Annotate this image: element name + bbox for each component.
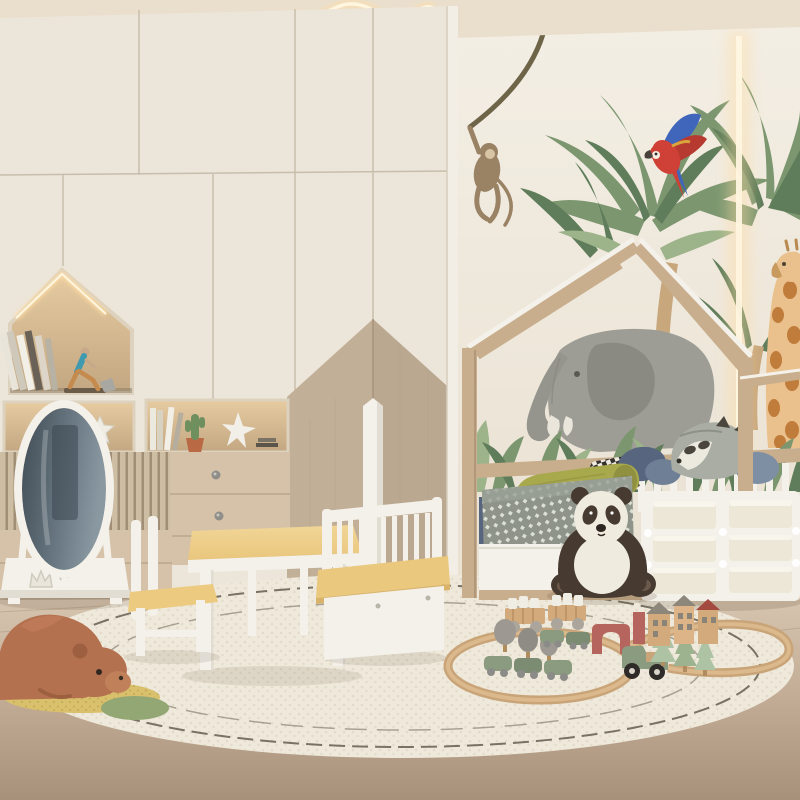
bedroom-render bbox=[0, 0, 800, 800]
wardrobe-side-edge bbox=[447, 6, 458, 600]
storage-bin-unit bbox=[638, 491, 800, 611]
green-mat bbox=[101, 696, 169, 720]
scene-canvas bbox=[0, 0, 800, 800]
bear-snout bbox=[105, 671, 131, 693]
